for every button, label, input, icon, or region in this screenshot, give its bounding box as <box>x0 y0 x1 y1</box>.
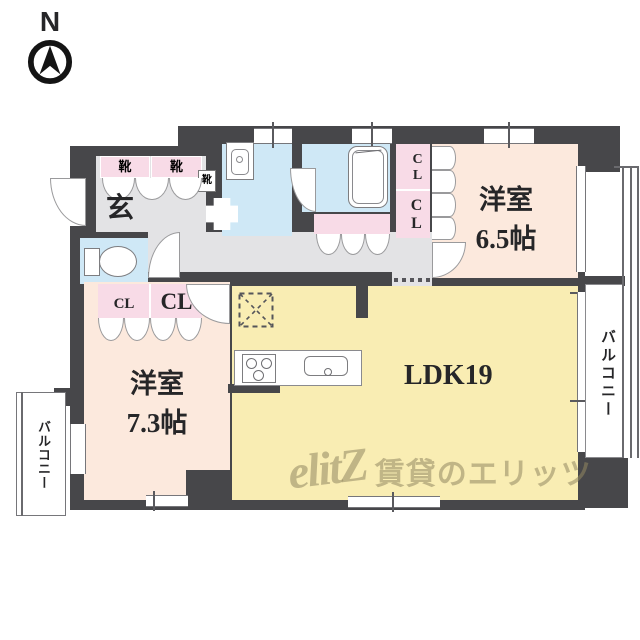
window-tick <box>153 491 155 511</box>
kitchen-sink <box>304 356 348 382</box>
balcony-left-label: バルコニー <box>27 400 53 510</box>
closet-right-bottom-label: CL <box>401 193 425 237</box>
entrance-label: 玄 <box>106 186 134 226</box>
closet-right-top-label: CL <box>401 148 425 188</box>
closet-left-small-label: CL <box>98 284 150 318</box>
balcony-right-railing <box>630 166 632 458</box>
north-arrow-icon <box>27 39 73 85</box>
balcony-right-railing <box>637 166 639 458</box>
bedroom-right-label: 洋室 6.5帖 <box>440 178 572 256</box>
window-tick <box>508 122 510 148</box>
closet-left-large-label: CL <box>151 284 202 318</box>
window-ldk-south <box>348 496 440 508</box>
threshold-line <box>394 278 430 282</box>
bedroom-left-closet-bifold <box>98 318 202 341</box>
compass-n-label: N <box>24 6 76 38</box>
balcony-right-label: バルコニー <box>590 296 618 452</box>
hall-closet <box>314 214 390 234</box>
bedroom-left-label: 洋室 7.3帖 <box>88 362 226 440</box>
stove <box>242 354 276 383</box>
refrigerator-space <box>238 292 274 328</box>
wall-southwest-jog <box>186 470 232 510</box>
bedroom-right-name: 洋室 <box>440 178 572 217</box>
floorplan: N 靴 靴 靴 <box>0 0 640 640</box>
window-bedroom-left-west <box>70 424 86 474</box>
closet-column-divider <box>396 189 430 191</box>
hall-closet-bifold <box>316 234 390 255</box>
shoe-cabinet-1: 靴 <box>100 156 150 178</box>
balcony-left-railing <box>21 392 23 516</box>
entrance-door <box>50 178 86 226</box>
shoe-cabinet-2: 靴 <box>151 156 202 178</box>
vanity-sink <box>226 142 254 180</box>
watermark-logo: elitZ <box>285 437 370 500</box>
balcony-right-railing <box>622 166 624 458</box>
bedroom-right-size: 6.5帖 <box>440 217 572 256</box>
window-bedroom-right-east <box>576 166 586 272</box>
bedroom-left-name: 洋室 <box>88 362 226 401</box>
bathtub <box>348 146 388 208</box>
compass: N <box>24 6 76 94</box>
toilet-fixture <box>84 242 144 282</box>
ldk-label: LDK19 <box>404 360 493 392</box>
watermark-text: 賃貸のエリッツ <box>375 449 592 493</box>
window-tick <box>272 122 274 148</box>
balcony-right-railing-top <box>614 166 639 168</box>
watermark: elitZ 賃貸のエリッツ <box>288 442 592 496</box>
bedroom-left-size: 7.3帖 <box>88 401 226 440</box>
kitchen-wall-stub <box>356 272 368 318</box>
